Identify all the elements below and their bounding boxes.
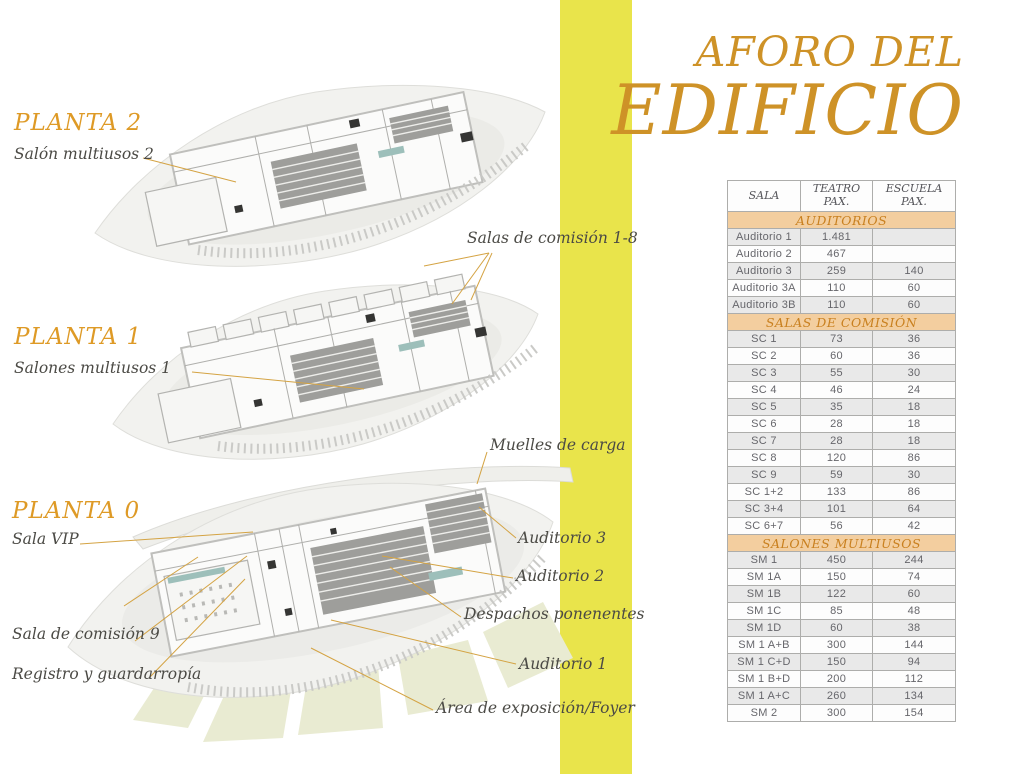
cell-sala: SC 3 [728,365,801,382]
cell-teatro-pax: 200 [801,671,873,688]
capacity-table: SALA TEATRO PAX. ESCUELA PAX. AUDITORIOS… [727,180,956,722]
cell-sala: SC 6+7 [728,518,801,535]
table-row: SC 35530 [728,365,956,382]
brochure-page: AFORO DEL EDIFICIO PLANTA 2 PLANTA 1 PLA… [0,0,1024,774]
cell-teatro-pax: 46 [801,382,873,399]
table-section-title: SALONES MULTIUSOS [728,535,956,552]
column-header-sala-text: SALA [728,190,800,203]
cell-teatro-pax: 120 [801,450,873,467]
table-row: Auditorio 3A11060 [728,280,956,297]
label-sala-vip: Sala VIP [12,530,79,548]
cell-teatro-pax: 35 [801,399,873,416]
heading-planta-0: PLANTA 0 [12,498,140,524]
cell-teatro-pax: 28 [801,433,873,450]
cell-escuela-pax [873,229,956,246]
cell-sala: SM 1 A+B [728,637,801,654]
cell-escuela-pax: 18 [873,399,956,416]
cell-escuela-pax: 144 [873,637,956,654]
table-row: SC 812086 [728,450,956,467]
table-section-row: SALAS DE COMISIÓN [728,314,956,331]
table-row: Auditorio 3259140 [728,263,956,280]
cell-teatro-pax: 150 [801,569,873,586]
label-salones-multiusos-1: Salones multiusos 1 [14,359,171,377]
cell-sala: SC 3+4 [728,501,801,518]
table-row: SC 26036 [728,348,956,365]
table-row: SM 1B12260 [728,586,956,603]
table-row: Auditorio 11.481 [728,229,956,246]
cell-escuela-pax: 244 [873,552,956,569]
table-section-title: SALAS DE COMISIÓN [728,314,956,331]
label-salas-comision-1-8: Salas de comisión 1-8 [467,229,638,247]
table-row: SC 95930 [728,467,956,484]
cell-sala: SM 1 A+C [728,688,801,705]
table-row: SC 3+410164 [728,501,956,518]
cell-sala: SM 1A [728,569,801,586]
cell-teatro-pax: 300 [801,705,873,722]
page-title-line2: EDIFICIO [611,77,964,146]
cell-escuela-pax: 30 [873,365,956,382]
page-title-line1: AFORO DEL [611,32,964,73]
cell-sala: SM 1B [728,586,801,603]
table-row: SC 6+75642 [728,518,956,535]
table-row: SM 1D6038 [728,620,956,637]
cell-sala: SC 1+2 [728,484,801,501]
cell-sala: SC 5 [728,399,801,416]
table-row: Auditorio 2467 [728,246,956,263]
cell-sala: SC 7 [728,433,801,450]
cell-sala: SM 1C [728,603,801,620]
cell-escuela-pax: 140 [873,263,956,280]
cell-escuela-pax: 38 [873,620,956,637]
table-row: SC 53518 [728,399,956,416]
cell-teatro-pax: 60 [801,348,873,365]
cell-escuela-pax: 60 [873,297,956,314]
cell-escuela-pax: 64 [873,501,956,518]
heading-planta-1: PLANTA 1 [14,324,142,350]
cell-sala: SM 1D [728,620,801,637]
cell-sala: Auditorio 3B [728,297,801,314]
cell-escuela-pax: 74 [873,569,956,586]
cell-escuela-pax: 86 [873,450,956,467]
label-auditorio-3: Auditorio 3 [518,529,606,547]
cell-escuela-pax: 18 [873,433,956,450]
cell-sala: SM 1 [728,552,801,569]
cell-teatro-pax: 28 [801,416,873,433]
column-header-sala: SALA [728,181,801,212]
cell-sala: SC 2 [728,348,801,365]
table-row: SC 62818 [728,416,956,433]
cell-sala: SM 1 C+D [728,654,801,671]
label-salon-multiusos-2: Salón multiusos 2 [14,145,154,163]
label-auditorio-1: Auditorio 1 [519,655,607,673]
table-row: SC 44624 [728,382,956,399]
cell-sala: SC 9 [728,467,801,484]
label-despachos-ponenentes: Despachos ponenentes [464,605,645,623]
cell-sala: Auditorio 1 [728,229,801,246]
table-row: SM 1 B+D200112 [728,671,956,688]
cell-escuela-pax: 18 [873,416,956,433]
label-sala-de-comision-9: Sala de comisión 9 [12,625,160,643]
capacity-table-body: AUDITORIOSAuditorio 11.481Auditorio 2467… [728,212,956,722]
cell-escuela-pax: 86 [873,484,956,501]
cell-teatro-pax: 150 [801,654,873,671]
table-row: SM 1C8548 [728,603,956,620]
column-header-escuela: ESCUELA PAX. [873,181,956,212]
cell-escuela-pax: 94 [873,654,956,671]
cell-teatro-pax: 1.481 [801,229,873,246]
cell-escuela-pax: 154 [873,705,956,722]
cell-teatro-pax: 467 [801,246,873,263]
cell-escuela-pax: 30 [873,467,956,484]
label-area-exposicion-foyer: Área de exposición/Foyer [436,699,635,717]
table-section-title: AUDITORIOS [728,212,956,229]
cell-teatro-pax: 259 [801,263,873,280]
cell-escuela-pax: 48 [873,603,956,620]
cell-teatro-pax: 450 [801,552,873,569]
table-row: Auditorio 3B11060 [728,297,956,314]
cell-teatro-pax: 300 [801,637,873,654]
cell-teatro-pax: 133 [801,484,873,501]
cell-escuela-pax: 42 [873,518,956,535]
table-section-row: AUDITORIOS [728,212,956,229]
cell-teatro-pax: 101 [801,501,873,518]
cell-teatro-pax: 73 [801,331,873,348]
label-registro-guardarropia: Registro y guardarropía [12,665,201,683]
table-row: SM 1450244 [728,552,956,569]
cell-escuela-pax: 60 [873,586,956,603]
cell-teatro-pax: 55 [801,365,873,382]
cell-teatro-pax: 56 [801,518,873,535]
cell-escuela-pax: 112 [873,671,956,688]
cell-sala: SC 4 [728,382,801,399]
heading-planta-2: PLANTA 2 [14,110,142,136]
table-row: SM 1A15074 [728,569,956,586]
table-row: SM 1 C+D15094 [728,654,956,671]
cell-sala: SC 1 [728,331,801,348]
table-section-row: SALONES MULTIUSOS [728,535,956,552]
cell-escuela-pax: 134 [873,688,956,705]
cell-teatro-pax: 59 [801,467,873,484]
cell-escuela-pax: 24 [873,382,956,399]
cell-escuela-pax: 36 [873,331,956,348]
table-header-row: SALA TEATRO PAX. ESCUELA PAX. [728,181,956,212]
column-header-teatro: TEATRO PAX. [801,181,873,212]
cell-teatro-pax: 260 [801,688,873,705]
table-row: SM 2300154 [728,705,956,722]
cell-teatro-pax: 110 [801,297,873,314]
table-row: SM 1 A+C260134 [728,688,956,705]
cell-sala: SM 1 B+D [728,671,801,688]
cell-sala: SC 6 [728,416,801,433]
table-row: SC 72818 [728,433,956,450]
table-row: SM 1 A+B300144 [728,637,956,654]
cell-escuela-pax [873,246,956,263]
cell-sala: Auditorio 2 [728,246,801,263]
cell-sala: SM 2 [728,705,801,722]
page-title: AFORO DEL EDIFICIO [611,32,964,146]
label-auditorio-2: Auditorio 2 [516,567,604,585]
table-row: SC 1+213386 [728,484,956,501]
cell-teatro-pax: 122 [801,586,873,603]
table-row: SC 17336 [728,331,956,348]
cell-teatro-pax: 60 [801,620,873,637]
cell-sala: Auditorio 3 [728,263,801,280]
cell-escuela-pax: 36 [873,348,956,365]
cell-sala: SC 8 [728,450,801,467]
label-muelles-de-carga: Muelles de carga [490,436,626,454]
cell-teatro-pax: 110 [801,280,873,297]
cell-escuela-pax: 60 [873,280,956,297]
cell-sala: Auditorio 3A [728,280,801,297]
cell-teatro-pax: 85 [801,603,873,620]
